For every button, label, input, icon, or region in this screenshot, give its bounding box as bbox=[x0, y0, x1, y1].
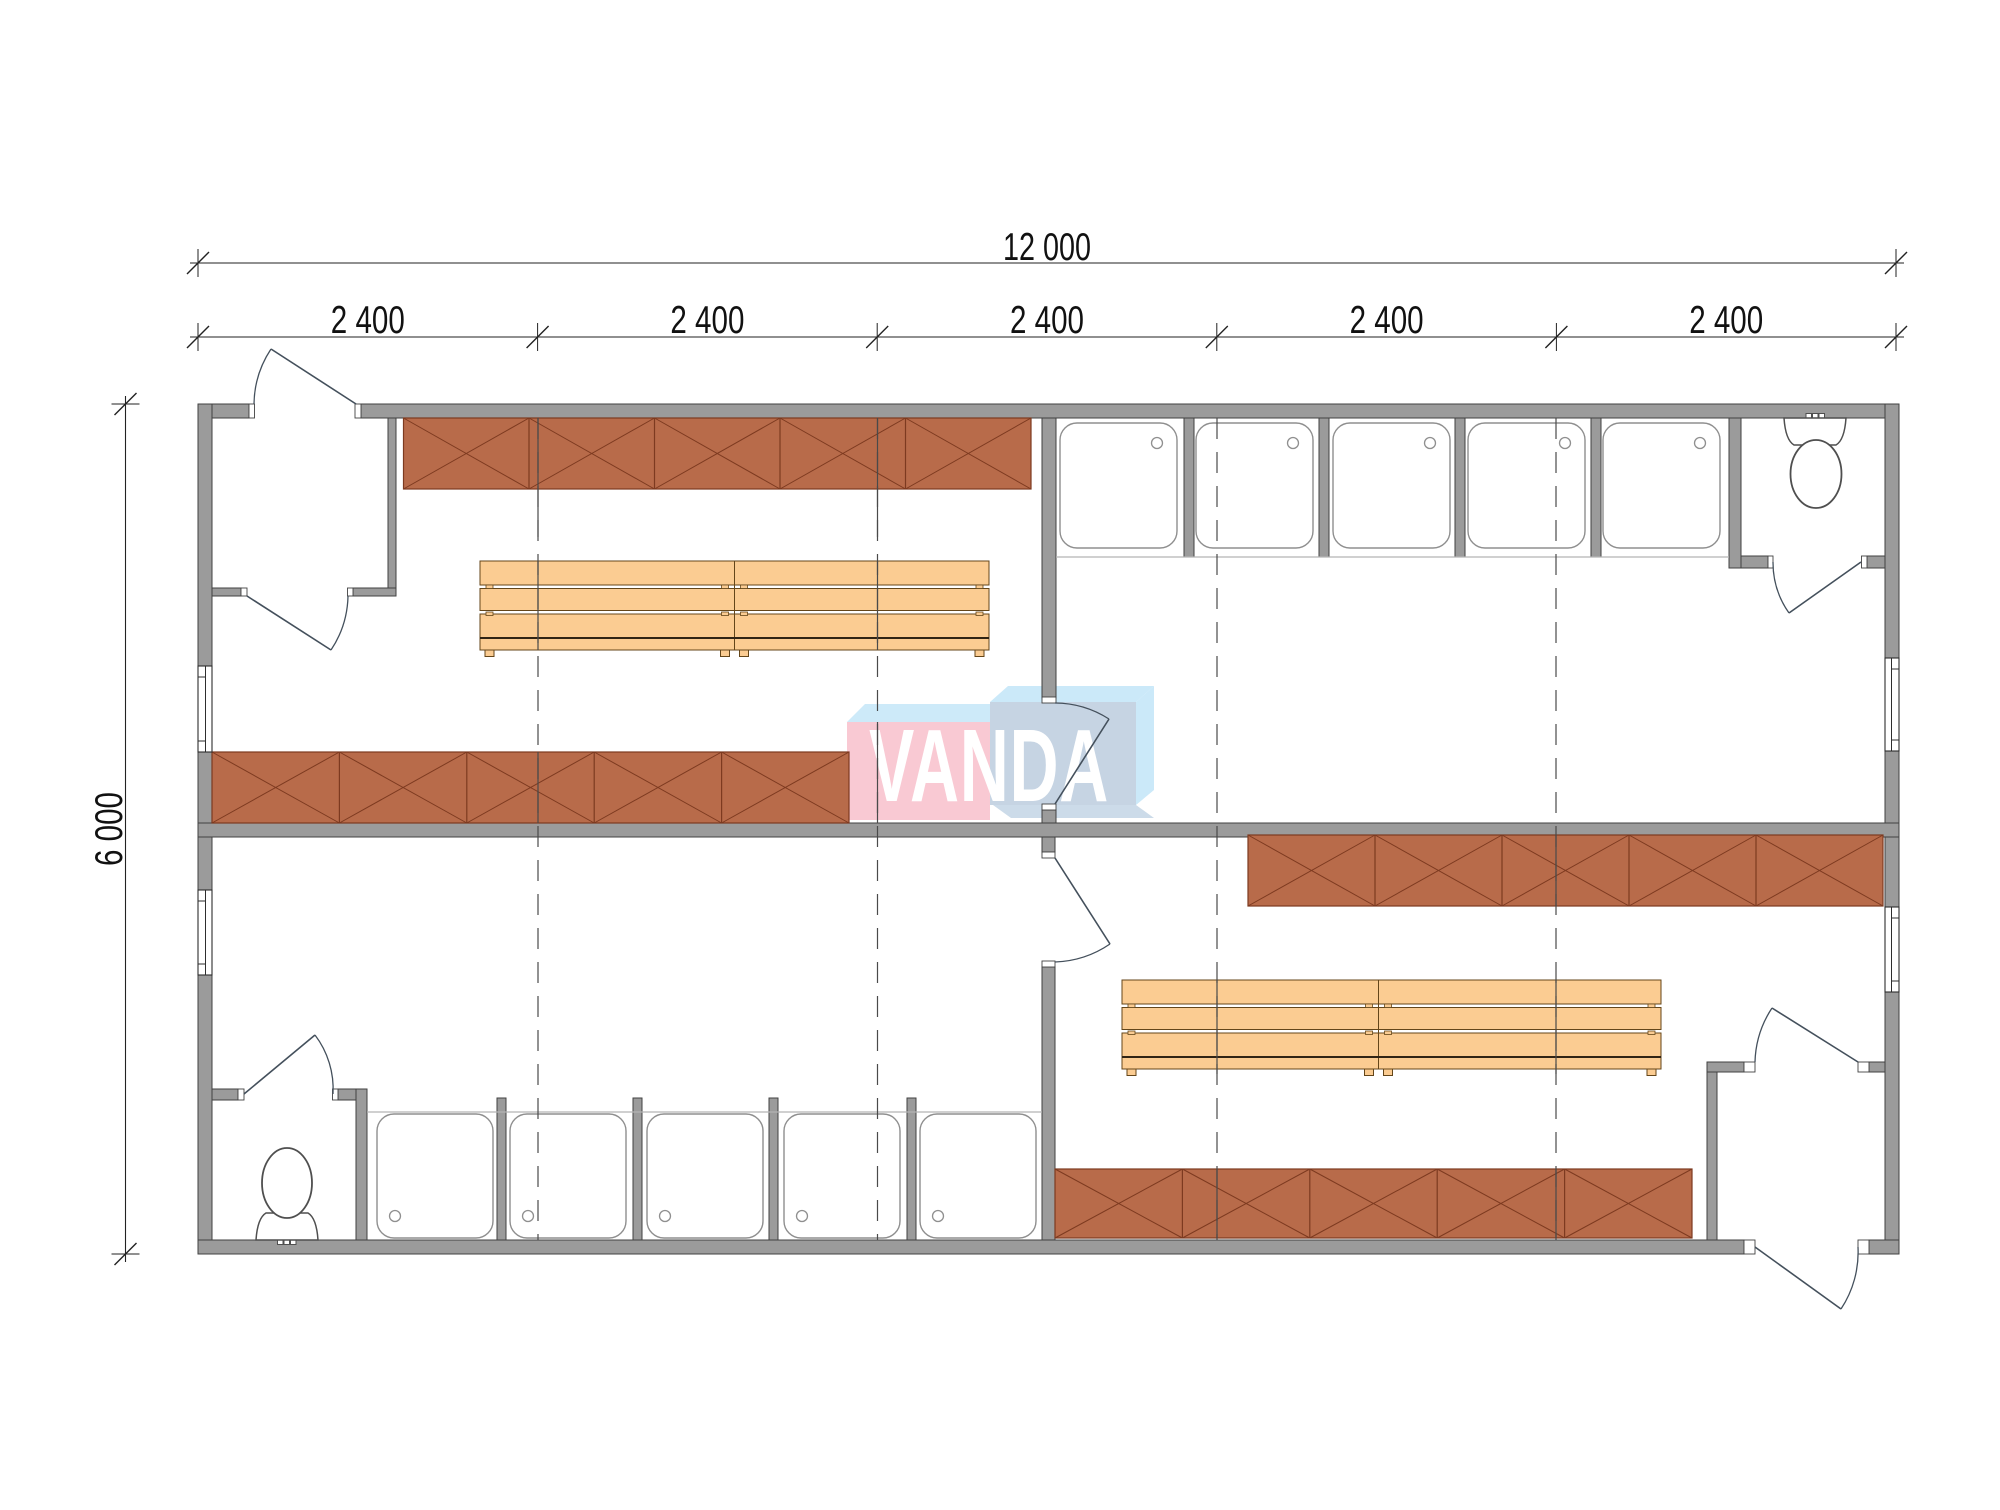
svg-text:2 400: 2 400 bbox=[331, 299, 405, 342]
svg-text:VANDA: VANDA bbox=[869, 709, 1109, 823]
svg-text:2 400: 2 400 bbox=[1010, 299, 1084, 342]
svg-text:12 000: 12 000 bbox=[1003, 226, 1091, 269]
svg-text:2 400: 2 400 bbox=[1689, 299, 1763, 342]
svg-text:2 400: 2 400 bbox=[670, 299, 744, 342]
svg-text:2 400: 2 400 bbox=[1350, 299, 1424, 342]
svg-text:6 000: 6 000 bbox=[88, 792, 131, 866]
